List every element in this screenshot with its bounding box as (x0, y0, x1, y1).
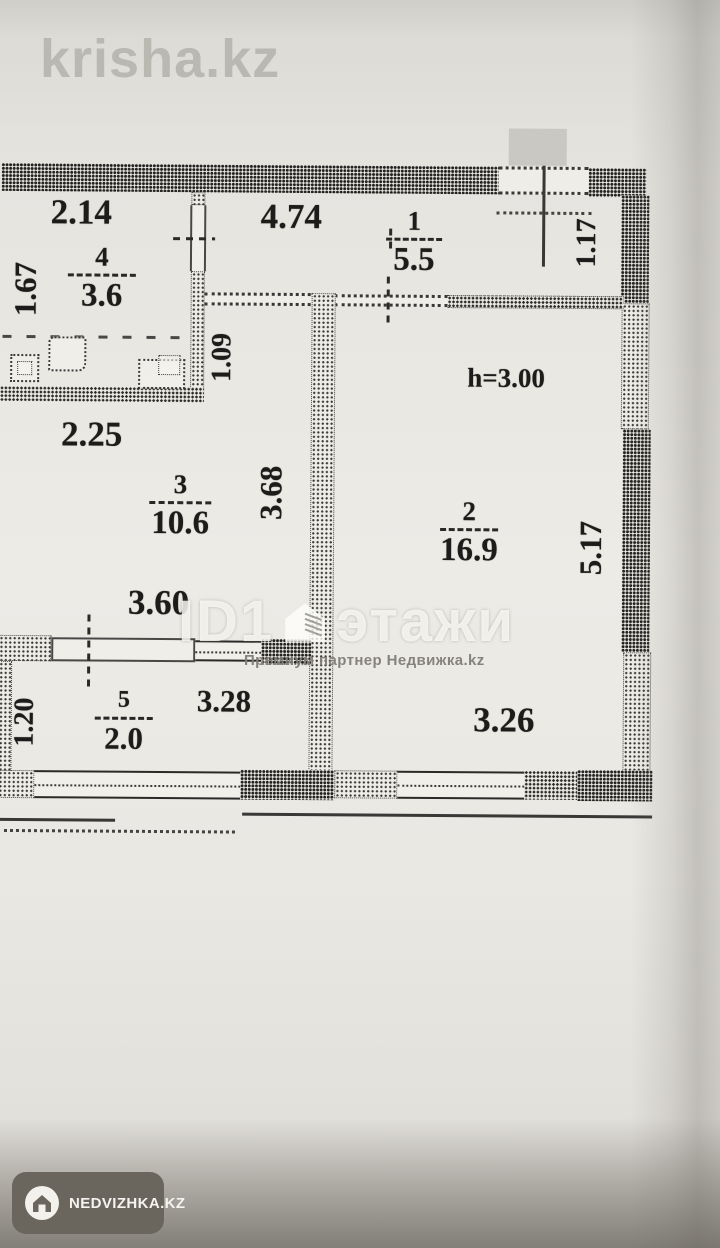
wall-room3-balcony-left (0, 635, 51, 661)
floorplan-photo: krisha.kz (0, 0, 720, 1248)
window-balcony (34, 770, 240, 799)
etazhi-id-text: ID1 (178, 588, 274, 655)
etazhi-subtitle: Премиум партнер Недвижка.kz (244, 652, 485, 669)
dim-room2-width: 3.26 (473, 700, 535, 740)
room-label-living: 2 16.9 (440, 498, 498, 566)
dim-balcony-depth: 1.20 (9, 697, 41, 746)
wall-right-window-1 (621, 303, 650, 429)
room-number: 1 (407, 208, 421, 234)
wall-bottom-segment-2 (524, 771, 577, 800)
wall-right-window-2 (622, 652, 651, 772)
dim-entry-depth: 1.17 (571, 218, 603, 267)
wall-bottom-pier-center (240, 770, 334, 801)
room-label-divider (440, 525, 498, 531)
room-area: 16.9 (440, 534, 498, 566)
entrance-axis-line (542, 163, 546, 267)
dim-recess-depth: 1.09 (206, 333, 238, 382)
tick-balcony-door (87, 615, 91, 687)
wall-hall-room2 (448, 295, 624, 309)
wall-bottom-pier-right (577, 770, 652, 802)
wall-kitchen-lower (190, 271, 205, 401)
wall-right-segment-2 (621, 429, 651, 652)
wall-top-exterior (1, 163, 498, 194)
room-area: 5.5 (393, 244, 434, 276)
nedvizhka-badge: NEDVIZHKA.KZ (12, 1172, 164, 1234)
wall-right-segment-1 (621, 195, 650, 303)
dim-room3-upper-width: 2.25 (61, 414, 123, 454)
tick-kitchen-wall (173, 237, 215, 240)
room-area: 3.6 (81, 279, 122, 311)
window-room2 (397, 771, 524, 800)
kitchen-counter-dashes (2, 335, 190, 339)
hall-room2-doorway (335, 294, 448, 307)
wall-interior-vertical (308, 293, 335, 773)
etazhi-watermark: ID1 этажи (178, 588, 515, 655)
room-label-hallway: 1 5.5 (386, 208, 442, 276)
dim-kitchen-depth: 1.67 (8, 262, 44, 317)
dim-kitchen-width: 2.14 (51, 192, 113, 232)
wall-top-right-corner (588, 168, 646, 197)
sill-dotted-line (0, 829, 235, 834)
kitchen-stove-icon (48, 336, 86, 371)
room-number: 2 (462, 498, 476, 524)
room-label-divider (68, 270, 136, 276)
etazhi-house-icon (280, 597, 330, 647)
dim-room3-depth: 3.68 (253, 466, 289, 521)
nedvizhka-house-icon (24, 1185, 60, 1221)
kitchen-appliance-inner-icon (158, 355, 180, 375)
room-label-divider (386, 235, 442, 241)
balcony-door-opening (51, 637, 195, 662)
kitchen-sink-inner-icon (17, 361, 32, 375)
sill-line-right (242, 813, 652, 819)
room-label-divider (95, 714, 153, 720)
dim-hall-width: 4.74 (261, 197, 323, 237)
censor-block (509, 128, 567, 165)
ceiling-height-label: h=3.00 (467, 363, 545, 395)
wall-kitchen-upper (191, 192, 205, 205)
dim-room2-depth: 5.17 (573, 521, 609, 576)
room-number: 3 (174, 471, 188, 497)
sill-line-left (0, 818, 115, 822)
wall-bottom-segment (334, 770, 397, 798)
room-area: 2.0 (104, 723, 143, 755)
room-label-room3: 3 10.6 (149, 471, 211, 539)
room-label-divider (149, 498, 211, 504)
etazhi-name-text: этажи (336, 588, 515, 655)
room-label-kitchen: 4 3.6 (68, 243, 136, 311)
tick-room2-door (387, 277, 390, 323)
hall-room3-opening (205, 292, 311, 306)
nedvizhka-badge-label: NEDVIZHKA.KZ (69, 1195, 185, 1212)
dim-balcony-width: 3.28 (197, 683, 252, 719)
wall-bottom-pier-left (0, 770, 34, 798)
room-number: 4 (95, 244, 109, 270)
room-label-balcony: 5 2.0 (95, 687, 153, 755)
room-area: 10.6 (151, 507, 209, 539)
room-number: 5 (118, 687, 130, 713)
